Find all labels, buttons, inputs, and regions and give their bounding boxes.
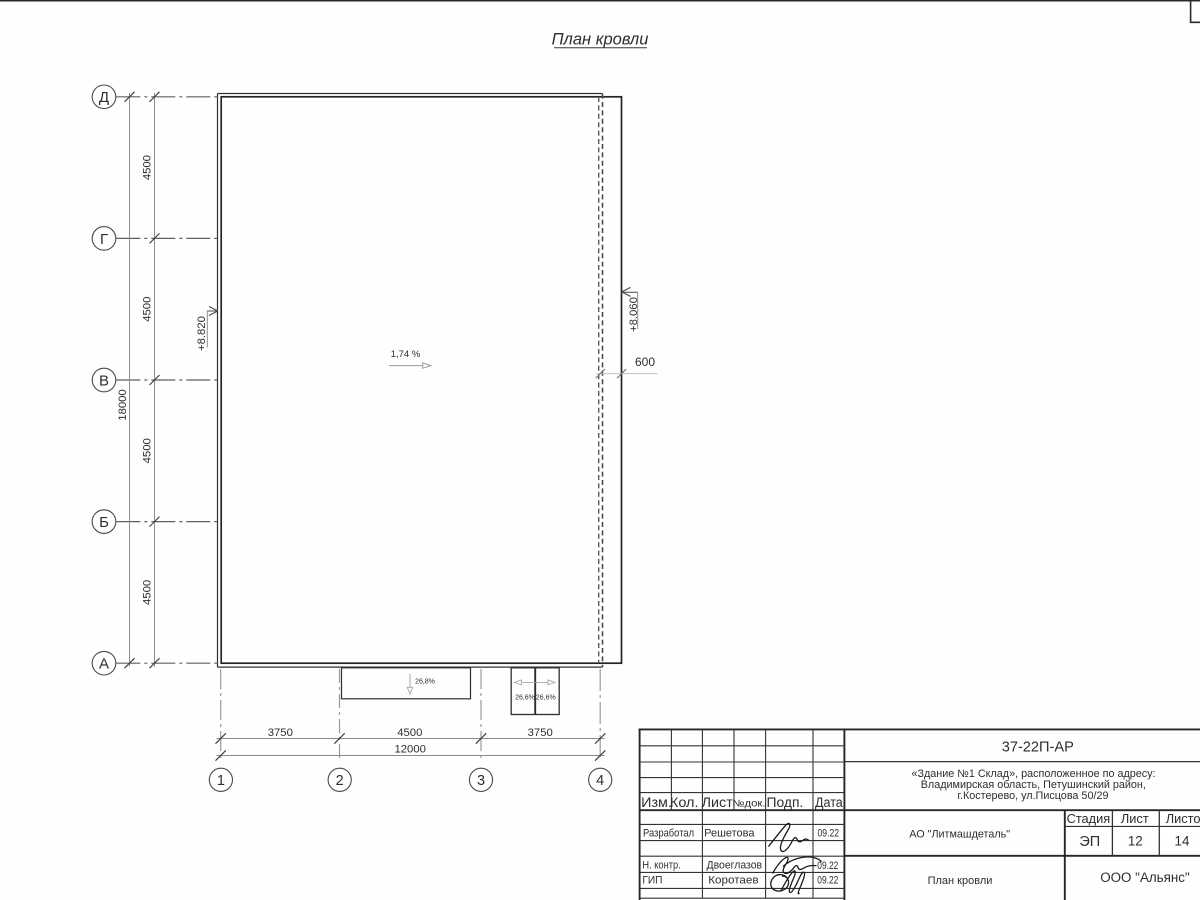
svg-text:Разработал: Разработал xyxy=(643,827,694,840)
svg-text:+8.820: +8.820 xyxy=(196,316,208,351)
svg-text:Д: Д xyxy=(99,89,109,106)
svg-text:4500: 4500 xyxy=(142,580,154,605)
svg-text:Изм.: Изм. xyxy=(641,794,672,810)
svg-text:2: 2 xyxy=(336,773,344,789)
svg-text:АО "Литмашдеталь": АО "Литмашдеталь" xyxy=(909,829,1010,841)
svg-text:План кровли: План кровли xyxy=(552,31,649,49)
svg-text:12: 12 xyxy=(1128,834,1143,849)
svg-text:Листов: Листов xyxy=(1166,811,1200,826)
svg-text:3750: 3750 xyxy=(268,727,293,739)
svg-text:Н. контр.: Н. контр. xyxy=(642,860,680,872)
svg-text:№док.: №док. xyxy=(732,798,765,809)
svg-text:Кол.: Кол. xyxy=(670,795,699,811)
svg-text:Двоеглазов: Двоеглазов xyxy=(706,859,762,871)
svg-text:ГИП: ГИП xyxy=(642,875,662,886)
svg-text:План кровли: План кровли xyxy=(928,875,993,887)
svg-text:Дата: Дата xyxy=(815,794,843,810)
svg-text:1,74 %: 1,74 % xyxy=(391,349,421,360)
svg-text:1: 1 xyxy=(217,773,225,789)
svg-text:600: 600 xyxy=(635,355,655,369)
svg-text:А: А xyxy=(99,656,109,673)
svg-text:12000: 12000 xyxy=(394,744,425,756)
svg-text:Подп.: Подп. xyxy=(766,794,803,810)
svg-text:4: 4 xyxy=(596,773,604,789)
svg-text:Решетова: Решетова xyxy=(704,828,755,840)
svg-text:18000: 18000 xyxy=(117,389,129,420)
svg-text:14: 14 xyxy=(1175,834,1190,849)
svg-text:Г: Г xyxy=(100,231,108,248)
svg-text:4500: 4500 xyxy=(142,155,154,180)
svg-text:Б: Б xyxy=(99,514,109,531)
svg-text:26,6%: 26,6% xyxy=(536,694,556,701)
svg-text:09.22: 09.22 xyxy=(817,874,838,886)
svg-text:Лист: Лист xyxy=(1121,811,1149,826)
svg-text:Лист: Лист xyxy=(702,794,734,810)
svg-text:Стадия: Стадия xyxy=(1067,811,1111,826)
svg-text:4500: 4500 xyxy=(142,438,154,463)
svg-text:37-22П-АР: 37-22П-АР xyxy=(1002,740,1074,756)
svg-text:В: В xyxy=(99,372,109,389)
svg-text:4500: 4500 xyxy=(142,297,154,322)
svg-text:г.Костерево, ул.Писцова 50/29: г.Костерево, ул.Писцова 50/29 xyxy=(957,790,1108,802)
svg-text:3750: 3750 xyxy=(528,727,553,739)
svg-text:Коротаев: Коротаев xyxy=(708,875,758,887)
svg-text:ООО "Альянс": ООО "Альянс" xyxy=(1100,870,1190,885)
svg-text:ЭП: ЭП xyxy=(1079,834,1100,850)
svg-text:09.22: 09.22 xyxy=(817,828,839,840)
svg-text:26,8%: 26,8% xyxy=(415,679,435,686)
svg-text:+8.060: +8.060 xyxy=(628,297,640,332)
svg-text:4500: 4500 xyxy=(397,727,422,739)
svg-text:09.22: 09.22 xyxy=(817,860,838,872)
svg-text:26,6%: 26,6% xyxy=(515,694,535,701)
svg-text:3: 3 xyxy=(477,773,485,789)
